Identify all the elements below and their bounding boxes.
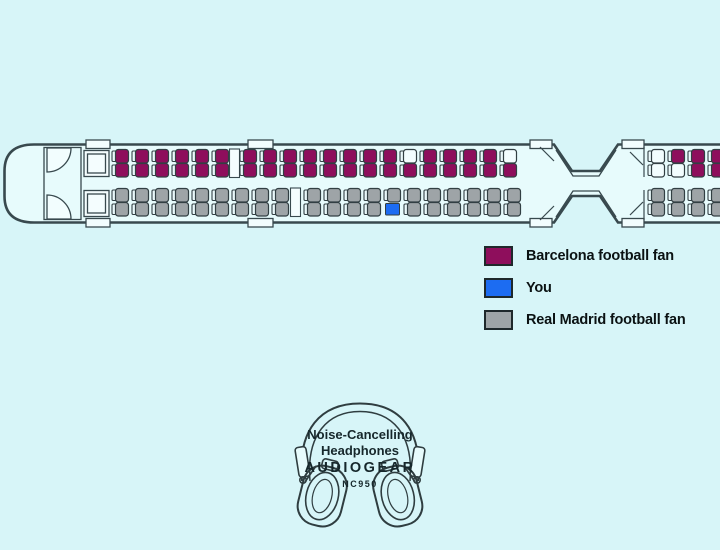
seat	[420, 150, 437, 164]
seat	[464, 203, 481, 217]
seat	[112, 189, 129, 203]
legend: Barcelona football fan You Real Madrid f…	[484, 240, 686, 336]
gap-table	[230, 149, 240, 178]
advert-canvas: Barcelona football fan You Real Madrid f…	[0, 0, 720, 550]
legend-item-barcelona: Barcelona football fan	[484, 240, 686, 272]
seat	[464, 189, 481, 203]
seat	[480, 164, 497, 178]
seat	[440, 164, 457, 178]
seat	[272, 203, 289, 217]
seat	[688, 203, 705, 217]
seat	[212, 189, 229, 203]
door-notch	[86, 140, 110, 149]
seat	[324, 203, 341, 217]
seat	[708, 203, 720, 217]
seat	[400, 164, 417, 178]
product-line2: Headphones	[280, 443, 440, 459]
seat	[152, 164, 169, 178]
seat	[112, 150, 129, 164]
seat	[364, 203, 381, 217]
seat	[252, 189, 269, 203]
seat	[192, 203, 209, 217]
seat	[172, 203, 189, 217]
seat	[260, 164, 277, 178]
door-notch	[622, 140, 644, 149]
door-notch	[248, 140, 273, 149]
seat	[440, 150, 457, 164]
seat	[252, 203, 269, 217]
seat	[380, 164, 397, 178]
seat	[300, 150, 317, 164]
product-line1: Noise-Cancelling	[280, 427, 440, 443]
seat	[212, 203, 229, 217]
legend-label-you: You	[526, 280, 552, 296]
seat	[668, 150, 685, 164]
legend-item-real-madrid: Real Madrid football fan	[484, 304, 686, 336]
seat	[132, 203, 149, 217]
seat	[688, 150, 705, 164]
seat	[460, 150, 477, 164]
product-brand: AUDIOGEAR	[280, 460, 440, 477]
seat	[708, 164, 720, 178]
seat	[340, 150, 357, 164]
seat	[192, 150, 209, 164]
seat	[300, 164, 317, 178]
seat-you	[386, 204, 400, 216]
seat	[404, 189, 421, 203]
seat	[648, 164, 665, 178]
seat	[192, 189, 209, 203]
product-text: Noise-Cancelling Headphones AUDIOGEAR NC…	[280, 427, 440, 490]
seat	[360, 150, 377, 164]
seat	[424, 203, 441, 217]
seat	[404, 203, 421, 217]
seat	[504, 189, 521, 203]
seat	[444, 189, 461, 203]
seat	[364, 189, 381, 203]
seat	[272, 189, 289, 203]
seat	[280, 150, 297, 164]
seat	[240, 150, 257, 164]
seat	[424, 189, 441, 203]
seat	[648, 150, 665, 164]
seat	[648, 189, 665, 203]
seat	[444, 203, 461, 217]
seat	[172, 150, 189, 164]
seat	[380, 150, 397, 164]
seat	[504, 203, 521, 217]
seat	[400, 150, 417, 164]
seat	[172, 164, 189, 178]
seat	[280, 164, 297, 178]
seat	[668, 203, 685, 217]
door-notch	[86, 219, 110, 228]
seat	[480, 150, 497, 164]
door-notch	[248, 219, 273, 228]
seat	[688, 189, 705, 203]
seat	[304, 203, 321, 217]
seat	[344, 203, 361, 217]
seat	[708, 189, 720, 203]
seat	[648, 203, 665, 217]
seat	[112, 164, 129, 178]
seat	[484, 189, 501, 203]
seat	[232, 189, 249, 203]
door-notch	[622, 219, 644, 228]
legend-swatch-real-madrid	[484, 310, 513, 330]
seat	[420, 164, 437, 178]
legend-swatch-barcelona	[484, 246, 513, 266]
seat	[232, 203, 249, 217]
seat	[688, 164, 705, 178]
seat	[152, 189, 169, 203]
seat	[192, 164, 209, 178]
seat	[152, 203, 169, 217]
legend-label-real-madrid: Real Madrid football fan	[526, 312, 686, 328]
seat	[484, 203, 501, 217]
gap-table	[291, 188, 301, 217]
legend-item-you: You	[484, 272, 686, 304]
seat	[324, 189, 341, 203]
product-model: NC950	[280, 478, 440, 490]
seat	[320, 164, 337, 178]
seat	[708, 150, 720, 164]
seat	[132, 164, 149, 178]
seat	[320, 150, 337, 164]
seat	[500, 164, 517, 178]
seat	[132, 189, 149, 203]
seat	[340, 164, 357, 178]
seat	[212, 150, 229, 164]
seat	[668, 164, 685, 178]
seat	[360, 164, 377, 178]
seat	[304, 189, 321, 203]
seat	[344, 189, 361, 203]
seat	[212, 164, 229, 178]
legend-label-barcelona: Barcelona football fan	[526, 248, 674, 264]
seat	[384, 189, 401, 203]
seat	[500, 150, 517, 164]
seat	[172, 189, 189, 203]
seat	[112, 203, 129, 217]
seat	[152, 150, 169, 164]
seat	[668, 189, 685, 203]
legend-swatch-you	[484, 278, 513, 298]
seat	[132, 150, 149, 164]
seat	[260, 150, 277, 164]
seat	[460, 164, 477, 178]
seat	[240, 164, 257, 178]
